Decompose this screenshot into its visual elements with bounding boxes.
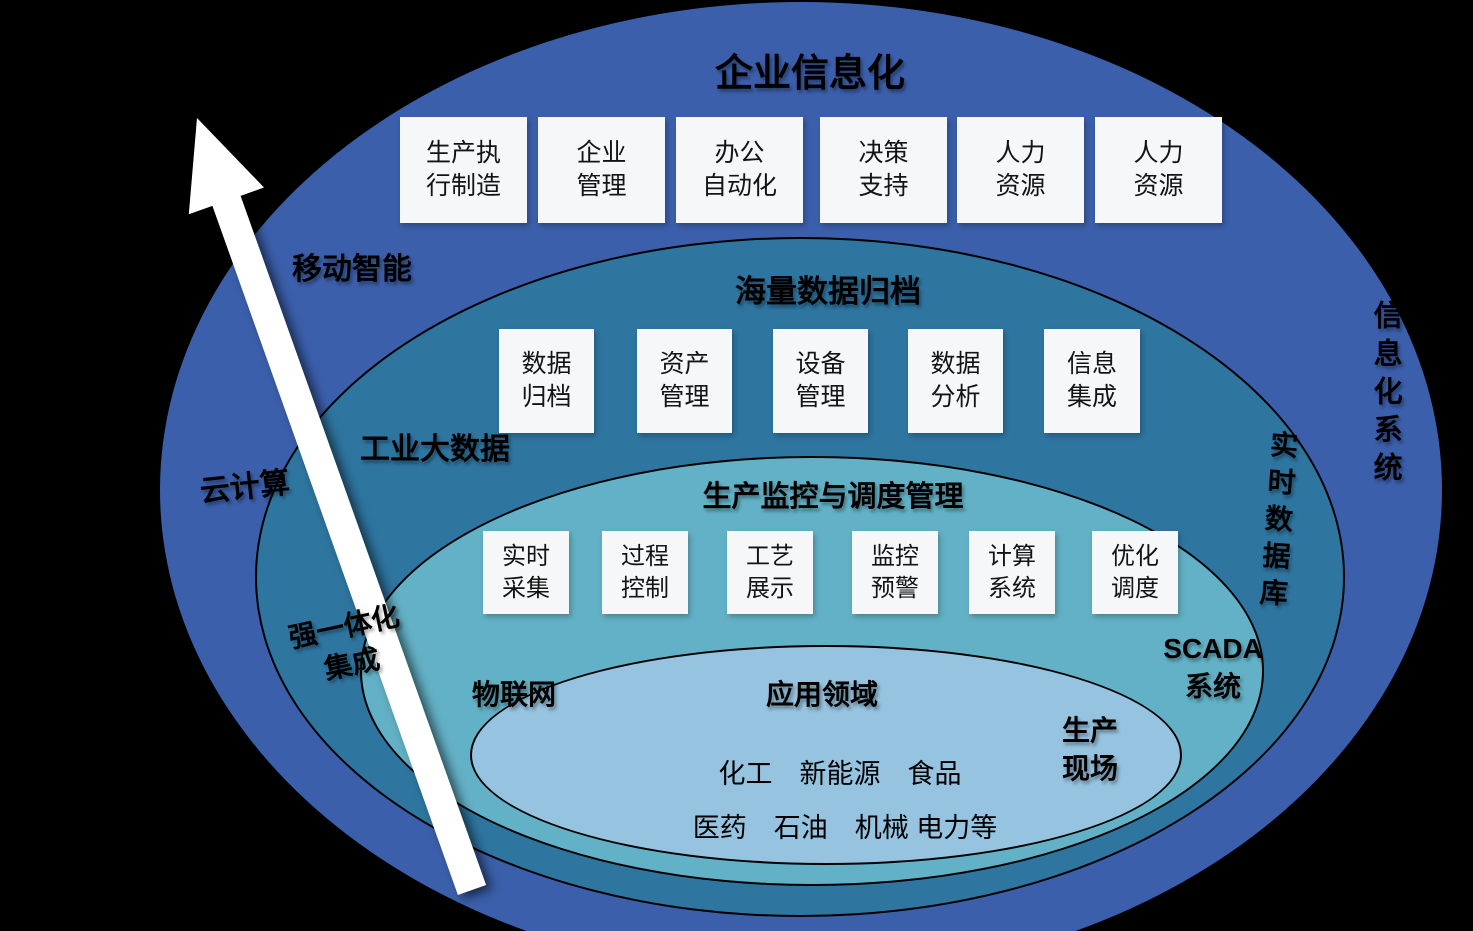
box-process-display: 工艺 展示 xyxy=(727,531,813,614)
box-realtime-collection: 实时 采集 xyxy=(483,531,569,614)
box-enterprise-management: 企业 管理 xyxy=(538,117,665,223)
label-industrial-big-data: 工业大数据 xyxy=(360,430,510,471)
label-informatization-system: 信息化系统 xyxy=(1365,300,1404,490)
box-computing-system: 计算 系统 xyxy=(969,531,1055,614)
application-domains-line1: 化工 新能源 食品 xyxy=(540,752,1140,791)
title-application-domain: 应用领域 xyxy=(692,673,952,713)
box-process-control: 过程 控制 xyxy=(602,531,688,614)
box-optimization-dispatch: 优化 调度 xyxy=(1092,531,1178,614)
label-production-site: 生产 现场 xyxy=(1062,712,1118,788)
box-human-resources-1: 人力 资源 xyxy=(957,117,1084,223)
box-monitoring-alert: 监控 预警 xyxy=(852,531,938,614)
application-domains-line2: 医药 石油 机械 电力等 xyxy=(545,806,1145,845)
box-human-resources-2: 人力 资源 xyxy=(1095,117,1222,223)
label-iot: 物联网 xyxy=(472,676,556,714)
box-data-archive: 数据 归档 xyxy=(499,329,594,433)
box-data-analysis: 数据 分析 xyxy=(908,329,1003,433)
diagram-canvas: 企业信息化 海量数据归档 生产监控与调度管理 应用领域 生产执 行制造 企业 管… xyxy=(0,0,1473,931)
title-mass-data-archive: 海量数据归档 xyxy=(658,266,998,311)
title-enterprise-informatization: 企业信息化 xyxy=(655,42,965,97)
label-mobile-intelligence: 移动智能 xyxy=(292,250,412,291)
box-information-integration: 信息 集成 xyxy=(1044,329,1140,433)
box-production-execution-manufacturing: 生产执 行制造 xyxy=(400,117,527,223)
box-equipment-management: 设备 管理 xyxy=(773,329,868,433)
label-scada-system: SCADA 系统 xyxy=(1143,630,1283,706)
box-decision-support: 决策 支持 xyxy=(820,117,947,223)
box-office-automation: 办公 自动化 xyxy=(676,117,803,223)
box-asset-management: 资产 管理 xyxy=(637,329,732,433)
title-production-monitoring: 生产监控与调度管理 xyxy=(633,473,1033,515)
